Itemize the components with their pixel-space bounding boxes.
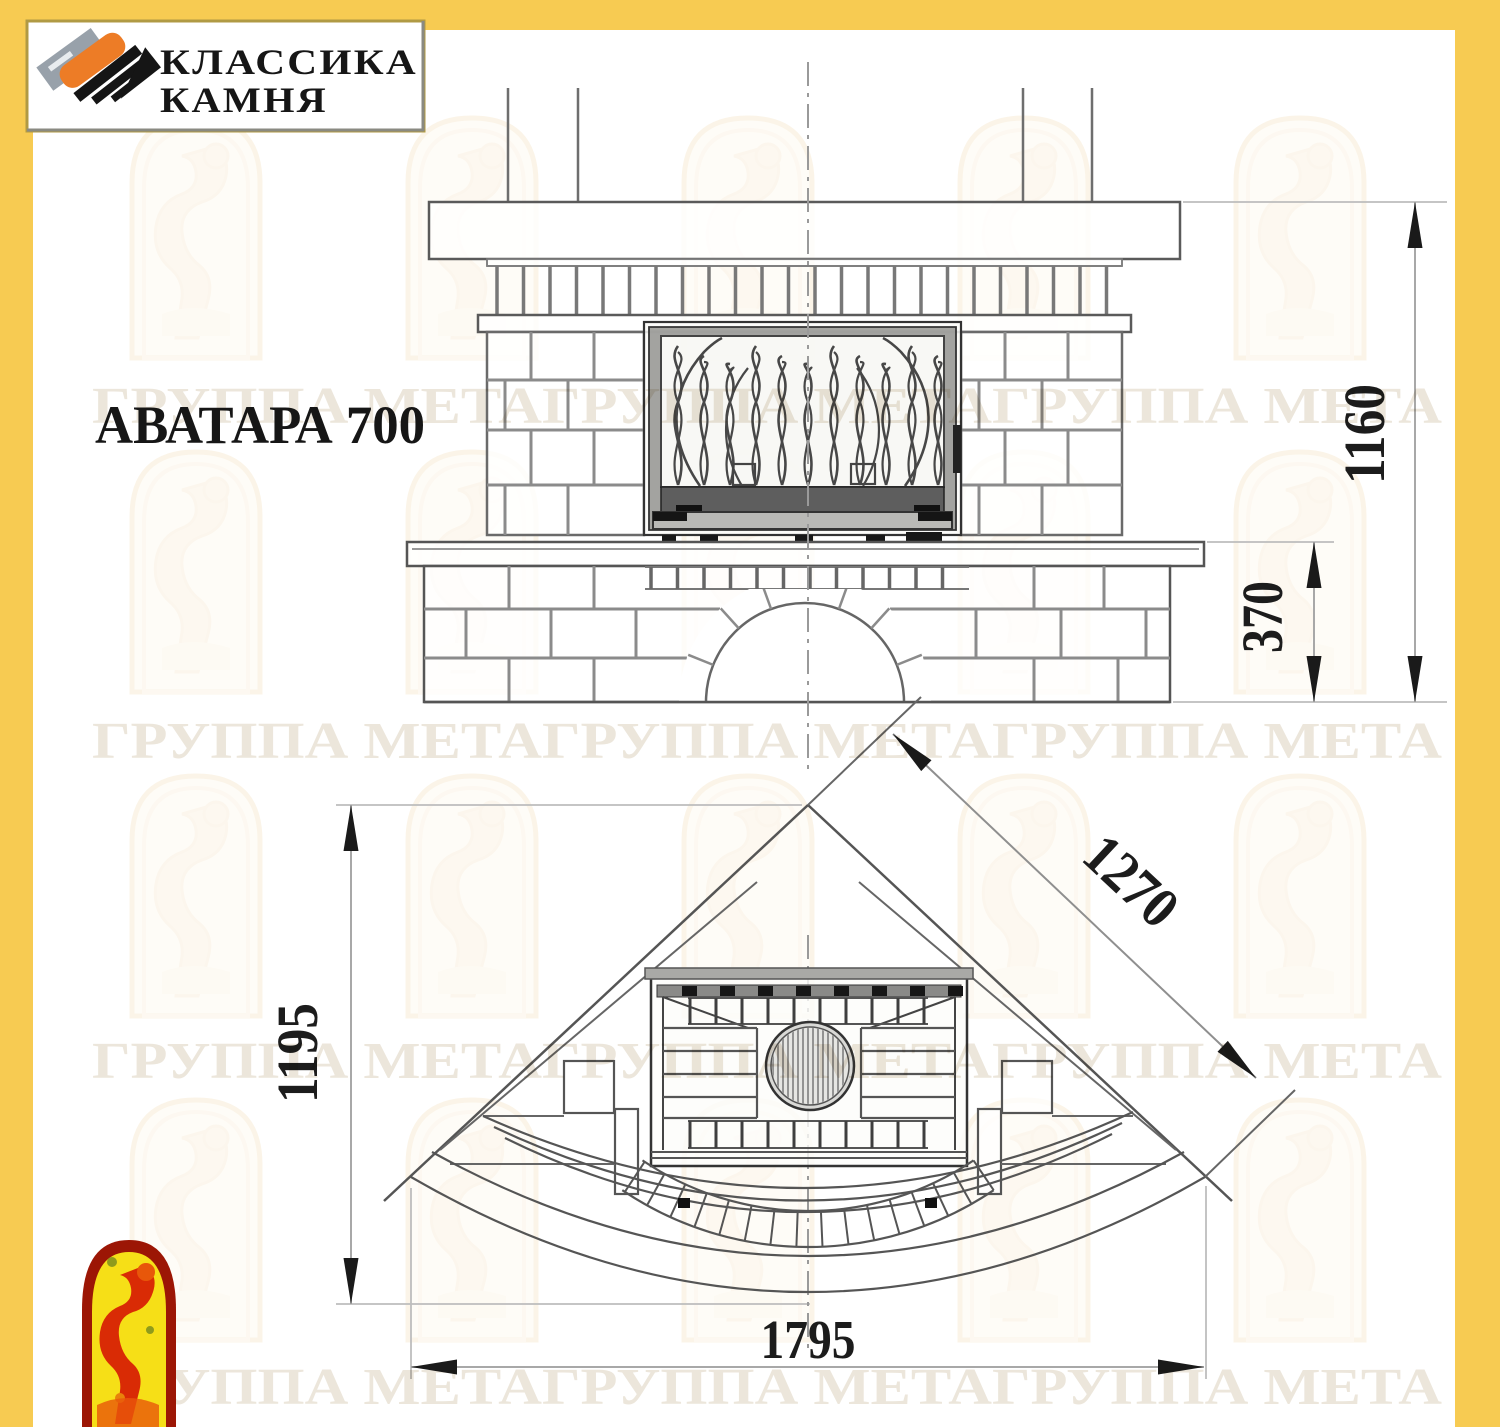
svg-text:КАМНЯ: КАМНЯ [160, 80, 328, 120]
svg-text:ГРУППА МЕТАГРУППА МЕТАГРУППА М: ГРУППА МЕТАГРУППА МЕТАГРУППА МЕТА [92, 1359, 1443, 1416]
svg-text:АВАТАРА 700: АВАТАРА 700 [95, 395, 425, 455]
svg-text:ГРУППА МЕТАГРУППА МЕТАГРУППА М: ГРУППА МЕТАГРУППА МЕТАГРУППА МЕТА [92, 1033, 1443, 1090]
svg-text:КЛАССИКА: КЛАССИКА [160, 42, 418, 82]
svg-text:ГРУППА МЕТАГРУППА МЕТАГРУППА М: ГРУППА МЕТАГРУППА МЕТАГРУППА МЕТА [92, 713, 1443, 770]
svg-text:370: 370 [1230, 581, 1295, 653]
